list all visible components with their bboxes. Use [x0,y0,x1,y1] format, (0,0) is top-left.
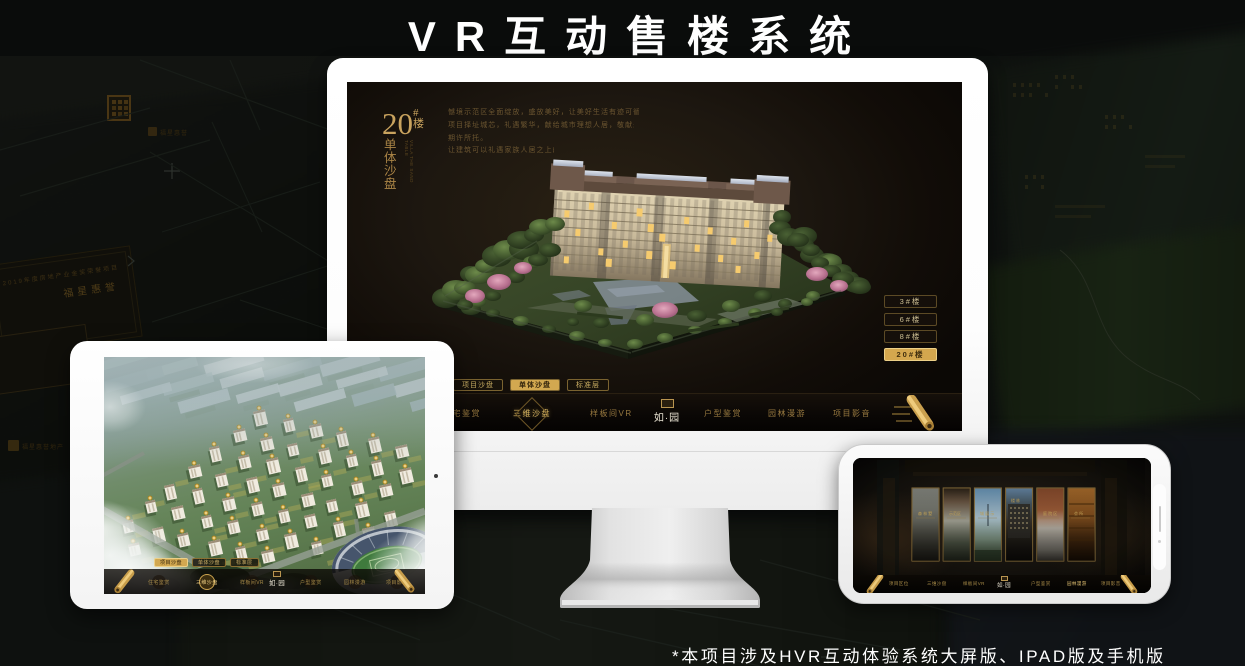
svg-text:福星惠誉地产: 福星惠誉地产 [22,443,64,451]
svg-text:福星惠誉: 福星惠誉 [160,129,188,137]
